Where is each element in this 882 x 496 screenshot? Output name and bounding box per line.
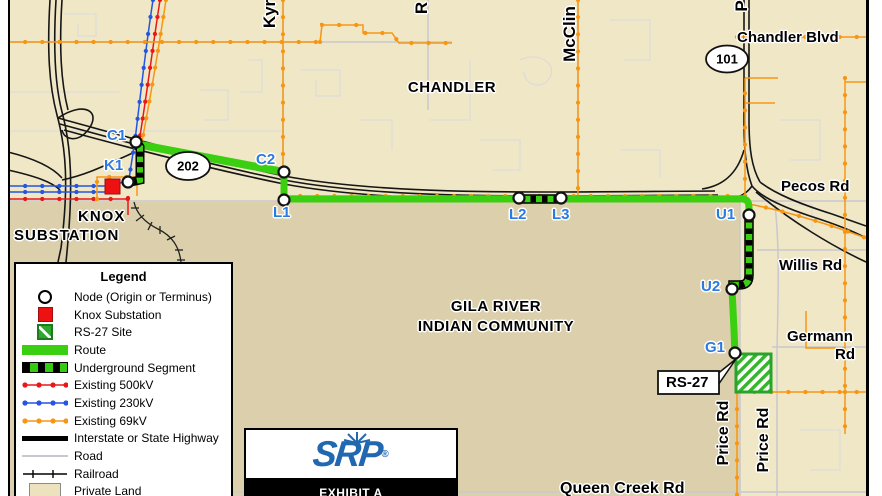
area-label-gila-river-line2: INDIAN COMMUNITY — [403, 318, 589, 335]
legend-item-230kv: Existing 230kV — [16, 394, 231, 412]
legend-item-label: Existing 69kV — [74, 414, 147, 428]
road-label-pecos-rd: Pecos Rd — [781, 178, 849, 195]
road-label-kyrene-partial: Kyr — [260, 0, 280, 28]
railroad-line-icon — [22, 469, 68, 479]
red-dot-line-icon — [22, 380, 68, 390]
underground-bar-icon — [22, 362, 68, 373]
exhibit-title-block: SRP ® EXHIBIT A — [244, 428, 458, 496]
orange-dot-line-icon — [22, 416, 68, 426]
legend-item-500kv: Existing 500kV — [16, 376, 231, 394]
route-bar-icon — [22, 345, 68, 355]
road-label-germann-line1: Germann — [787, 328, 853, 345]
red-square-icon — [38, 307, 53, 322]
legend-item-underground: Underground Segment — [16, 359, 231, 377]
legend-item-label: Interstate or State Highway — [74, 431, 219, 445]
legend-item-knox: Knox Substation — [16, 306, 231, 324]
legend-item-rs27: RS-27 Site — [16, 323, 231, 341]
legend-item-highway: Interstate or State Highway — [16, 430, 231, 448]
srp-logo: SRP ® — [246, 430, 456, 478]
legend-item-69kv: Existing 69kV — [16, 412, 231, 430]
road-label-rural-partial: R — [412, 2, 432, 14]
node-label-u2: U2 — [701, 278, 720, 295]
legend-box: Legend Node (Origin or Terminus) Knox Su… — [14, 262, 233, 496]
legend-title: Legend — [16, 269, 231, 284]
legend-item-label: RS-27 Site — [74, 325, 132, 339]
node-label-l1: L1 — [273, 204, 291, 221]
registered-mark-icon: ® — [381, 449, 388, 460]
node-circle-icon — [38, 290, 52, 304]
knox-substation-marker — [105, 179, 120, 194]
legend-item-label: Knox Substation — [74, 308, 161, 322]
exhibit-caption: EXHIBIT A — [246, 478, 456, 496]
area-label-gila-river-line1: GILA RIVER — [440, 298, 552, 315]
private-land-icon — [29, 483, 61, 496]
legend-item-label: Underground Segment — [74, 361, 195, 375]
blue-dot-line-icon — [22, 398, 68, 408]
map-exhibit: CHANDLER GILA RIVER INDIAN COMMUNITY KNO… — [0, 0, 882, 496]
node-label-c1: C1 — [107, 127, 126, 144]
legend-item-road: Road — [16, 447, 231, 465]
rs27-callout-label: RS-27 — [666, 374, 709, 391]
node-circle-l2 — [514, 193, 525, 204]
road-label-willis-rd: Willis Rd — [779, 257, 842, 274]
node-circle-c2 — [279, 167, 290, 178]
legend-item-node: Node (Origin or Terminus) — [16, 288, 231, 306]
node-label-l3: L3 — [552, 206, 570, 223]
knox-substation-label-line1: KNOX — [78, 208, 125, 225]
highway-line-icon — [22, 436, 68, 441]
legend-item-label: Route — [74, 343, 106, 357]
legend-item-label: Existing 230kV — [74, 396, 153, 410]
shield-label-202: 202 — [177, 159, 199, 174]
srp-wordmark: SRP — [311, 436, 383, 472]
node-circle-l3 — [556, 193, 567, 204]
shield-label-101: 101 — [716, 52, 738, 67]
node-label-k1: K1 — [104, 157, 123, 174]
node-circle-c1 — [131, 137, 142, 148]
node-circle-u2 — [727, 284, 738, 295]
legend-item-label: Existing 500kV — [74, 378, 153, 392]
road-label-price-rd-west: Price Rd — [715, 401, 733, 466]
green-hatch-square-icon — [37, 324, 53, 340]
legend-item-label: Railroad — [74, 467, 119, 481]
road-label-germann-line2: Rd — [835, 346, 855, 363]
legend-item-label: Road — [74, 449, 103, 463]
node-circle-k1 — [123, 177, 134, 188]
legend-item-label: Private Land — [74, 484, 141, 496]
road-label-queen-creek-rd: Queen Creek Rd — [560, 480, 684, 496]
area-label-chandler: CHANDLER — [396, 79, 508, 96]
road-label-price-top-partial: P — [732, 0, 752, 11]
node-label-u1: U1 — [716, 206, 735, 223]
node-label-c2: C2 — [256, 151, 275, 168]
node-circle-u1 — [744, 210, 755, 221]
legend-item-route: Route — [16, 341, 231, 359]
road-label-price-rd-east: Price Rd — [755, 408, 773, 473]
road-line-icon — [22, 455, 68, 457]
legend-item-railroad: Railroad — [16, 465, 231, 483]
knox-substation-label-line2: SUBSTATION — [14, 227, 119, 244]
node-label-l2: L2 — [509, 206, 527, 223]
legend-item-label: Node (Origin or Terminus) — [74, 290, 212, 304]
node-circle-g1 — [730, 348, 741, 359]
legend-item-private-land: Private Land — [16, 483, 231, 496]
node-label-g1: G1 — [705, 339, 725, 356]
road-label-chandler-blvd: Chandler Blvd — [737, 29, 839, 46]
road-label-mcclintock-partial: McClin — [560, 6, 580, 62]
rs27-site-area — [736, 354, 771, 392]
